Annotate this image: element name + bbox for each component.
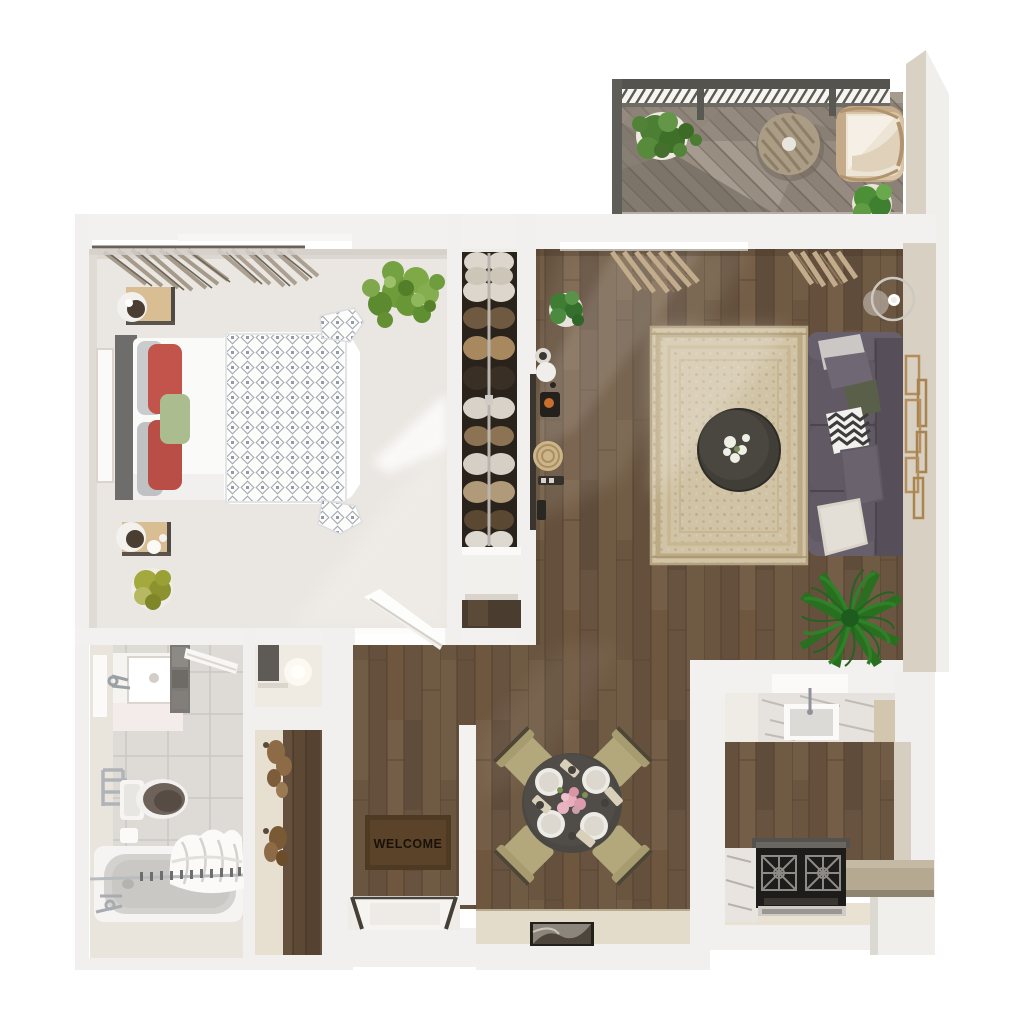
svg-text:WELCOME: WELCOME [374, 837, 443, 851]
